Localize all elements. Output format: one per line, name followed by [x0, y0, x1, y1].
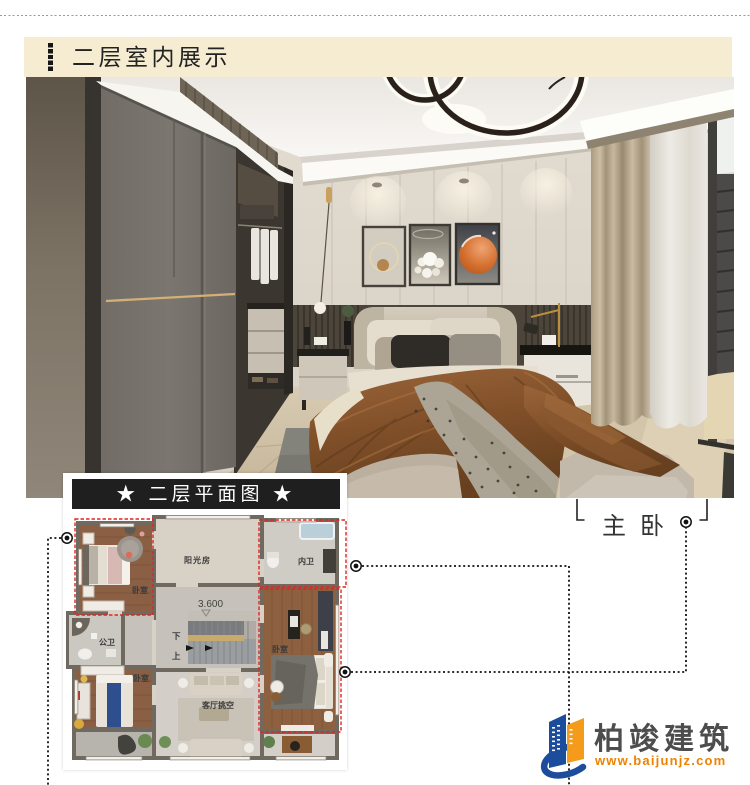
- svg-text:www.baijunjz.com: www.baijunjz.com: [594, 753, 726, 768]
- svg-text:柏竣建筑: 柏竣建筑: [594, 722, 734, 756]
